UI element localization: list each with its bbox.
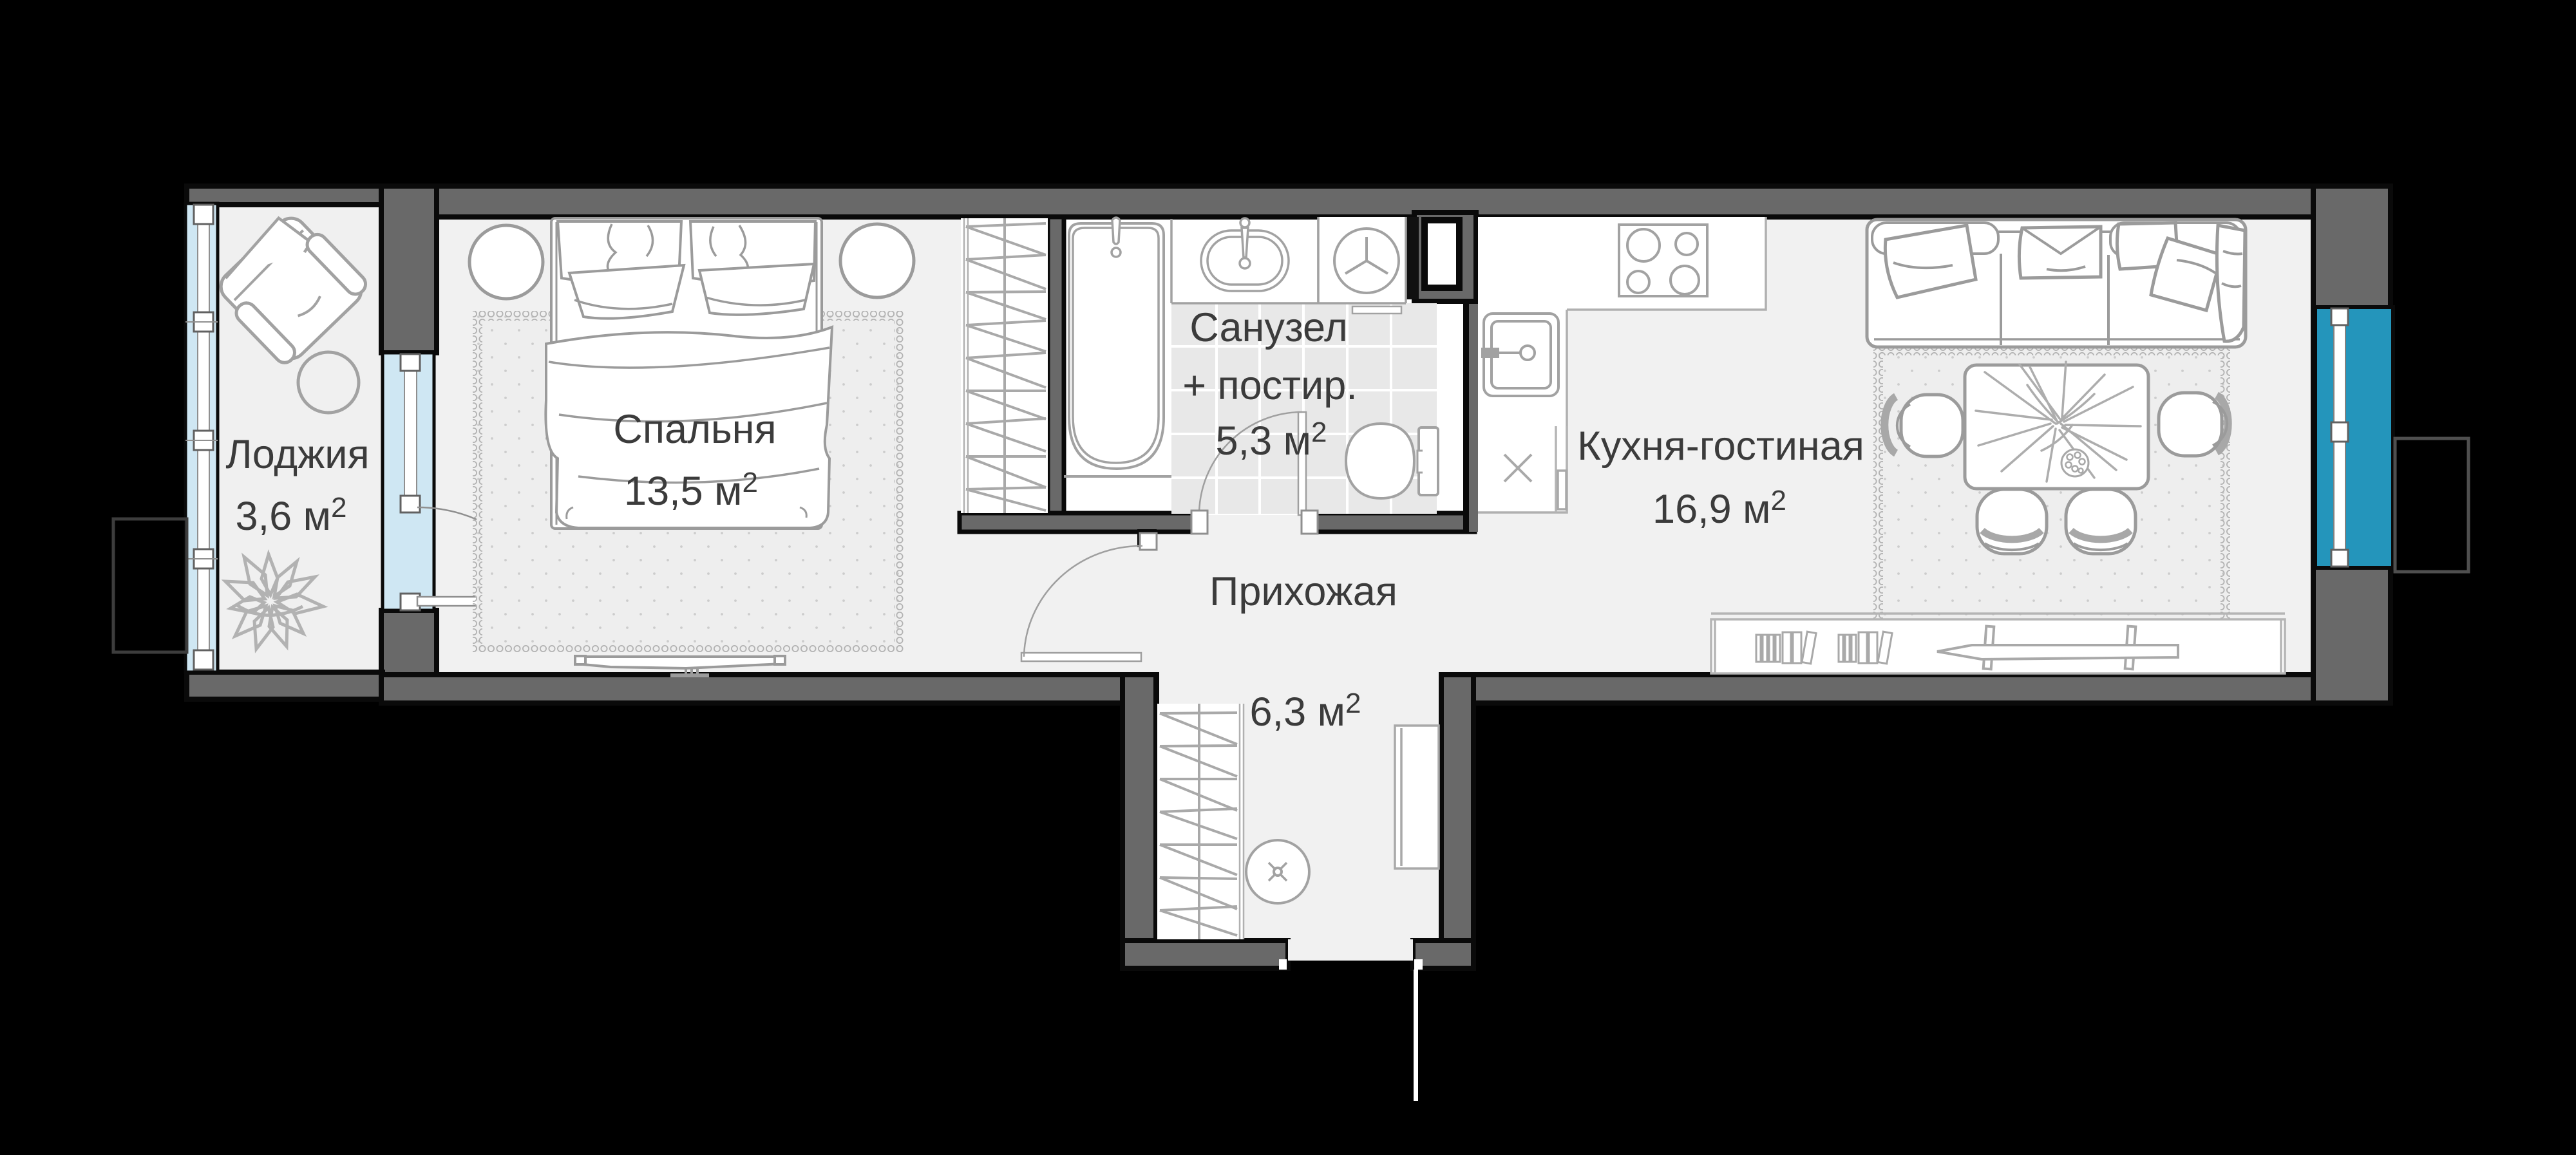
- svg-text:6,3 м2: 6,3 м2: [1250, 688, 1361, 735]
- svg-text:Спальня: Спальня: [613, 407, 776, 452]
- svg-text:Лоджия: Лоджия: [225, 432, 369, 477]
- svg-text:Санузел: Санузел: [1189, 305, 1347, 350]
- svg-text:16,9 м2: 16,9 м2: [1653, 485, 1786, 532]
- svg-text:13,5 м2: 13,5 м2: [624, 467, 758, 514]
- svg-text:5,3 м2: 5,3 м2: [1216, 417, 1327, 464]
- svg-text:3,6 м2: 3,6 м2: [236, 492, 347, 539]
- svg-text:Кухня-гостиная: Кухня-гостиная: [1577, 424, 1864, 469]
- svg-text:+ постир.: + постир.: [1182, 363, 1358, 408]
- svg-text:Прихожая: Прихожая: [1209, 569, 1397, 614]
